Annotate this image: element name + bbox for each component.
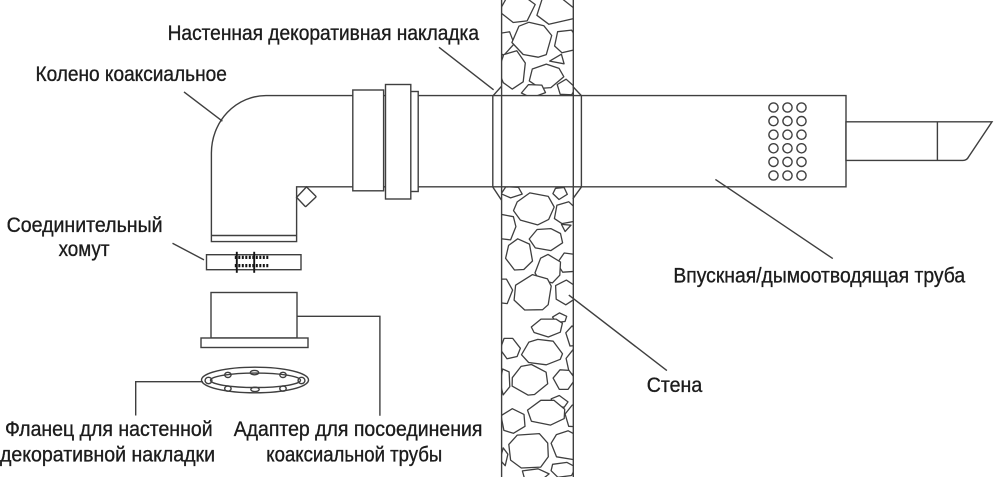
svg-text:Соединительный: Соединительный bbox=[7, 214, 163, 237]
svg-text:Колено коаксиальное: Колено коаксиальное bbox=[36, 63, 227, 86]
svg-text:Настенная декоративная накладк: Настенная декоративная накладка bbox=[168, 22, 480, 45]
svg-text:коаксиальной трубы: коаксиальной трубы bbox=[266, 443, 442, 466]
svg-text:хомут: хомут bbox=[59, 238, 110, 261]
svg-text:Фланец для настенной: Фланец для настенной bbox=[5, 418, 213, 441]
svg-text:Впускная/дымоотводящая труба: Впускная/дымоотводящая труба bbox=[673, 264, 965, 287]
svg-text:Адаптер для посоединения: Адаптер для посоединения bbox=[234, 418, 483, 441]
svg-text:декоративной накладки: декоративной накладки bbox=[0, 443, 215, 466]
svg-text:Стена: Стена bbox=[647, 374, 703, 397]
